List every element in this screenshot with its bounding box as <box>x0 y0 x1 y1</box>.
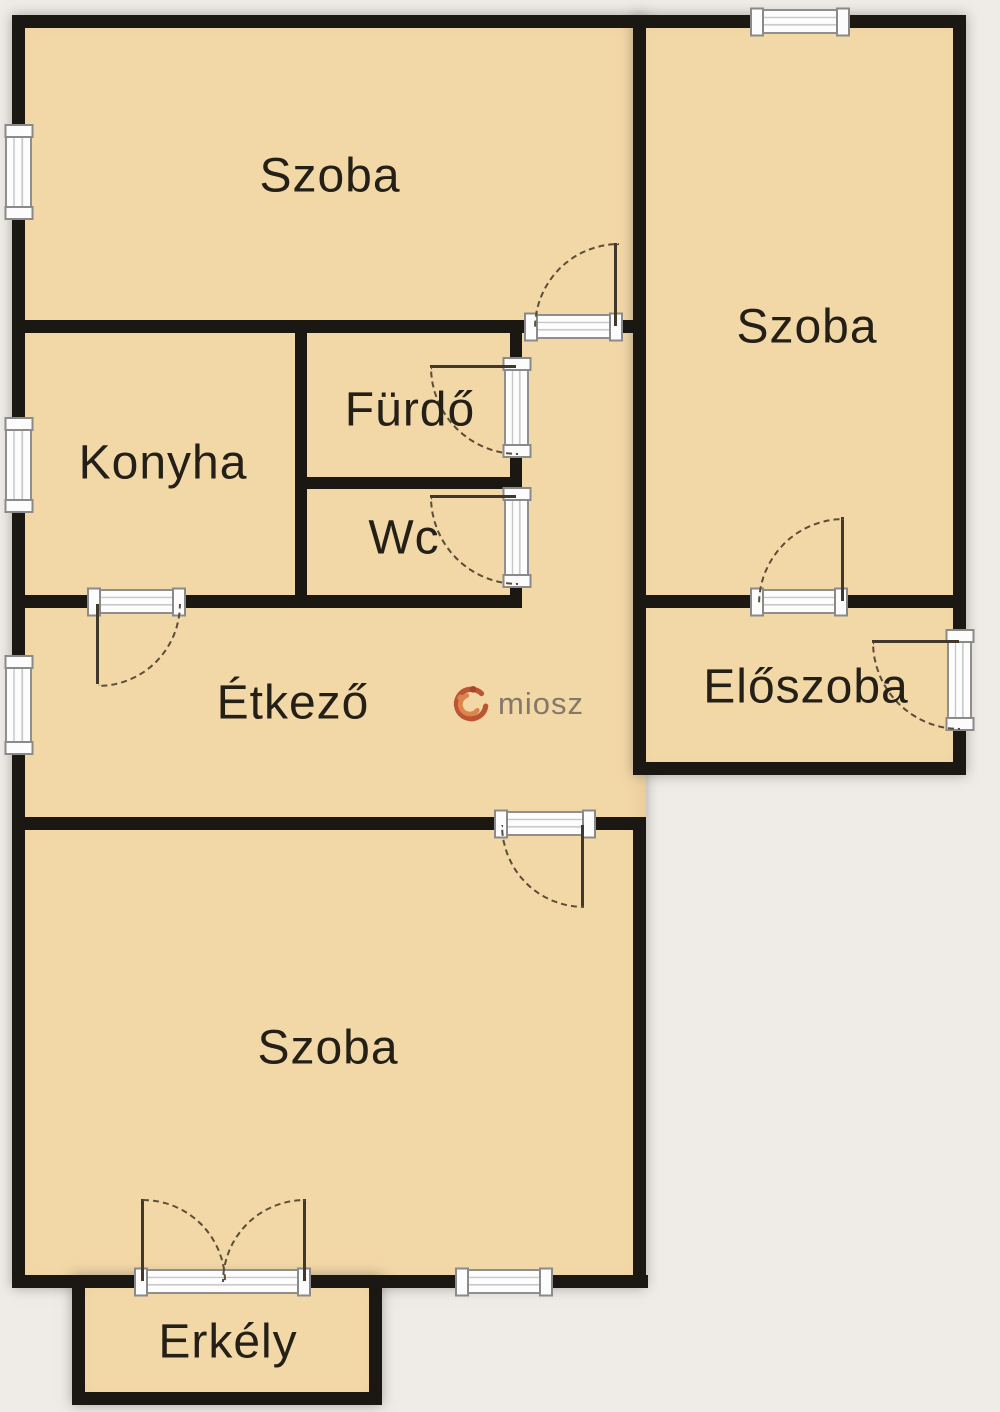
window-etkezo-left-icon <box>5 658 32 752</box>
window-szoba1-left-icon <box>5 127 32 217</box>
room-label-szoba-top-left: Szoba <box>259 149 400 204</box>
room-label-szoba-bottom: Szoba <box>257 1021 398 1076</box>
room-label-furdo: Fürdő <box>345 383 475 438</box>
room-label-etkezo: Étkező <box>217 676 370 731</box>
room-label-erkely: Erkély <box>158 1315 297 1370</box>
wall-eloszoba-bottom <box>633 762 966 775</box>
window-szoba2-top-icon <box>753 9 847 34</box>
room-label-wc: Wc <box>368 511 439 566</box>
window-szoba3-bottom-icon <box>458 1269 550 1294</box>
room-label-konyha: Konyha <box>79 436 248 491</box>
miosz-logo-icon <box>450 683 492 725</box>
wall-furdo-wc-divider <box>295 477 522 489</box>
wall-szoba3-right <box>633 817 646 1288</box>
window-konyha-left-icon <box>5 420 32 510</box>
watermark: miosz <box>450 683 584 725</box>
watermark-text: miosz <box>498 686 584 722</box>
room-label-szoba-top-right: Szoba <box>736 300 877 355</box>
wall-center-vertical <box>633 15 646 775</box>
floor-plan: Szoba Szoba Fürdő Konyha Wc Étkező Elősz… <box>0 0 1000 1412</box>
wall-konyha-right <box>295 320 307 608</box>
wall-balcony-left <box>72 1288 85 1405</box>
room-label-eloszoba: Előszoba <box>703 660 908 715</box>
wall-balcony-bottom <box>72 1392 382 1405</box>
wall-balcony-right <box>369 1288 382 1405</box>
